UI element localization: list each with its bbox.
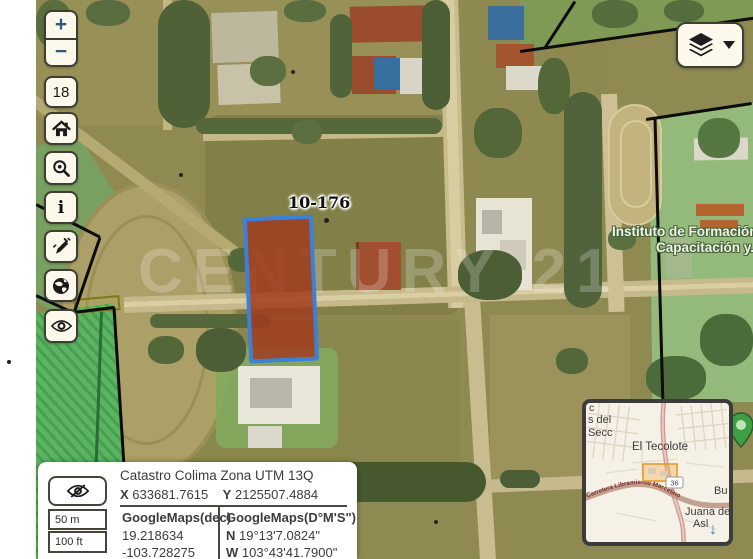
- zoom-level-value: 18: [53, 84, 70, 101]
- map-feature: [148, 336, 184, 364]
- map-feature: [284, 0, 326, 22]
- minimap-label-c: c: [589, 403, 594, 414]
- scale-metric-label: 50 m: [55, 514, 79, 526]
- dms-latitude: N 19°13'7.0824": [226, 528, 320, 543]
- margin-dot: [7, 360, 11, 364]
- map-feature: [86, 0, 130, 26]
- minimap-building: [648, 468, 656, 474]
- dec-longitude: -103.728275: [122, 545, 195, 559]
- measure-tools-button[interactable]: [44, 230, 78, 263]
- map-feature: [700, 314, 753, 366]
- instituto-label-line1: Instituto de Formación: [612, 224, 753, 239]
- scale-imperial-label: 100 ft: [55, 536, 83, 548]
- parcel-label: 10-176: [288, 193, 350, 212]
- utm-coordinates: X 633681.7615 Y 2125507.4884: [120, 487, 318, 502]
- map-feature: [179, 173, 183, 177]
- minimap-label-el-tecolote: El Tecolote: [632, 441, 688, 453]
- map-feature: [422, 0, 450, 110]
- globe-button[interactable]: [44, 269, 78, 302]
- map-feature: [292, 120, 322, 144]
- zoom-search-button[interactable]: [44, 151, 78, 185]
- map-feature: [250, 378, 292, 408]
- overview-minimap[interactable]: Carretera Libramiento Marcelino 36 c s d…: [582, 399, 733, 546]
- home-button[interactable]: [44, 112, 78, 145]
- utm-y-value: 2125507.4884: [235, 487, 318, 502]
- dec-column-header: GoogleMaps(dec): [122, 510, 231, 525]
- map-feature: [196, 328, 246, 372]
- zoom-in-button[interactable]: +: [46, 12, 76, 40]
- info-icon: i: [58, 198, 64, 218]
- map-feature: [291, 70, 295, 74]
- globe-icon: [51, 276, 71, 296]
- map-feature: [330, 14, 352, 98]
- map-feature: [556, 348, 588, 374]
- map-feature: [474, 108, 522, 158]
- selected-parcel-polygon[interactable]: [243, 215, 319, 364]
- century21-watermark: CENTURY 21: [138, 236, 620, 307]
- panel-title: Catastro Colima Zona UTM 13Q: [120, 468, 314, 483]
- catastro-map-app: CENTURY 21 10-176 Instituto de Formación…: [0, 0, 753, 559]
- panel-divider-horizontal: [120, 505, 347, 507]
- map-feature: [620, 120, 652, 208]
- visibility-button[interactable]: [44, 309, 78, 343]
- map-feature: [592, 0, 638, 28]
- zoom-out-button[interactable]: −: [46, 40, 76, 66]
- dec-latitude: 19.218634: [122, 528, 183, 543]
- zoom-search-icon: [51, 158, 71, 178]
- map-feature: [696, 204, 744, 216]
- map-feature: [698, 118, 740, 158]
- map-feature: [538, 58, 570, 114]
- eye-off-icon: [67, 483, 89, 499]
- minimap-label-juana: Juana de: [685, 506, 729, 518]
- minimap-label-sdel: s del: [588, 414, 611, 426]
- map-feature: [482, 210, 502, 234]
- map-feature: [350, 5, 433, 42]
- minimap-label-bu: Bu: [714, 485, 727, 497]
- minimap-content: Carretera Libramiento Marcelino 36 c s d…: [586, 403, 729, 542]
- zoom-level-indicator: 18: [44, 76, 78, 108]
- dms-column-header: GoogleMaps(D°M'S"): [226, 510, 356, 525]
- instituto-label-line2: Capacitación y.: [656, 240, 753, 255]
- info-button[interactable]: i: [44, 191, 78, 224]
- map-feature: [158, 0, 210, 128]
- caret-down-icon: [723, 41, 735, 49]
- parcel-point-marker: [324, 218, 329, 223]
- map-feature: [646, 356, 706, 400]
- measure-edit-icon: [52, 237, 71, 256]
- layers-icon: [686, 32, 716, 58]
- layers-button[interactable]: [676, 22, 744, 68]
- map-feature: [664, 0, 704, 22]
- page-margin: [0, 0, 36, 559]
- route-shield-number: 36: [670, 479, 678, 488]
- dms-lat-prefix: N: [226, 528, 235, 543]
- home-icon: [52, 120, 71, 138]
- dms-lon-value: 103°43'41.7900": [242, 545, 337, 559]
- dms-lat-value: 19°13'7.0824": [239, 528, 320, 543]
- minimap-building: [660, 471, 667, 476]
- utm-x-value: 633681.7615: [132, 487, 208, 502]
- minimap-collapse-button[interactable]: ↓: [709, 521, 717, 538]
- minimap-label-secc: Secc: [588, 427, 613, 439]
- map-feature: [488, 6, 524, 40]
- dms-lon-prefix: W: [226, 545, 238, 559]
- map-feature: [500, 470, 540, 488]
- map-feature: [248, 426, 282, 448]
- map-feature: [250, 56, 286, 86]
- coordinate-info-panel: 50 m 100 ft Catastro Colima Zona UTM 13Q…: [38, 462, 357, 559]
- map-feature: [374, 58, 400, 90]
- map-feature: [496, 44, 534, 68]
- utm-y-label: Y: [223, 487, 232, 502]
- utm-x-label: X: [120, 487, 129, 502]
- eye-icon: [51, 319, 72, 333]
- scale-bar-metric: 50 m: [48, 509, 107, 530]
- dms-longitude: W 103°43'41.7900": [226, 545, 337, 559]
- zoom-control: + −: [44, 10, 78, 67]
- minimap-label-asl: Asl: [693, 518, 708, 530]
- scale-bar-imperial: 100 ft: [48, 531, 107, 553]
- map-feature: [434, 520, 438, 524]
- hide-panel-button[interactable]: [48, 476, 107, 506]
